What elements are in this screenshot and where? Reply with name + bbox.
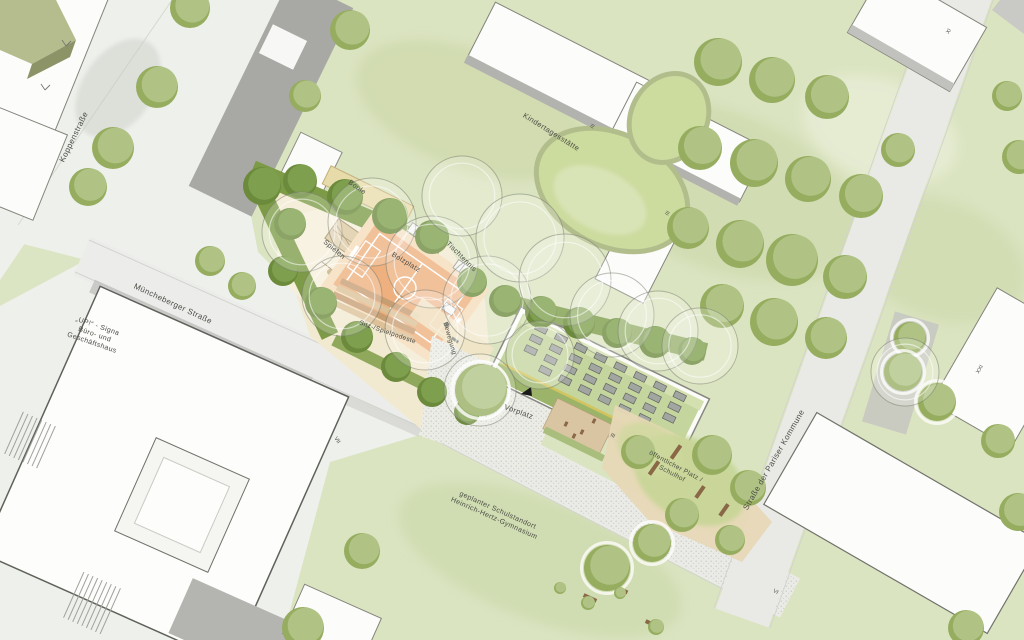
tree-icon [766, 234, 818, 286]
tree-crown-light [811, 318, 847, 354]
tree-icon [678, 126, 722, 170]
tree-icon [554, 582, 566, 594]
tree-outline [506, 321, 574, 389]
tree-outline-icon [662, 308, 738, 384]
tree-outline [662, 308, 738, 384]
tree-icon [716, 220, 764, 268]
tree-icon [631, 522, 674, 565]
tree-crown-light [719, 525, 745, 551]
tree-crown-light [986, 425, 1015, 454]
tree-crown-light [293, 80, 320, 107]
tree-icon [805, 317, 847, 359]
site-plan-canvas: KoppenstraßeMüncheberger StraßeKindertag… [0, 0, 1024, 640]
tree-crown-light [791, 157, 830, 196]
tree-icon [992, 81, 1022, 111]
tree-icon [881, 133, 915, 167]
tree-crown-light [886, 134, 915, 163]
tree-outline-icon [506, 321, 574, 389]
tree-icon [195, 246, 225, 276]
tree-icon [805, 75, 849, 119]
tree-icon [694, 38, 742, 86]
tree-icon [665, 498, 699, 532]
tree-crown-light [736, 140, 777, 181]
tree-crown-light [142, 67, 178, 103]
tree-crown-light [829, 256, 866, 293]
tree-icon [92, 127, 134, 169]
tree-icon [750, 298, 798, 346]
tree-crown-light [616, 587, 626, 597]
tree-crown-light [700, 39, 741, 80]
tree-icon [289, 80, 321, 112]
tree-crown-light [638, 525, 670, 557]
tree-crown-light [996, 81, 1022, 107]
tree-icon [69, 168, 107, 206]
tree-crown-light [349, 534, 380, 565]
tree-outline [444, 354, 516, 426]
tree-outline-icon [444, 354, 516, 426]
tree-crown-light [755, 58, 794, 97]
tree-crown-light [590, 546, 629, 585]
tree-dark-icon [417, 377, 447, 407]
tree-crown-light [199, 246, 225, 272]
tree-icon [785, 156, 831, 202]
tree-crown-light [74, 169, 106, 201]
tree-icon [170, 0, 210, 28]
storeys-vii-up-numeral: VII [332, 436, 341, 445]
tree-icon [715, 525, 745, 555]
tree-icon [823, 255, 867, 299]
tree-icon [344, 533, 380, 569]
tree-icon [582, 543, 633, 594]
tree-icon [692, 435, 732, 475]
tree-icon [730, 139, 778, 187]
up-stairs [5, 412, 24, 454]
tree-crown-light [684, 127, 721, 164]
up-stairs [9, 414, 28, 456]
tree-dark-icon [243, 167, 281, 205]
tree-outline [871, 338, 939, 406]
tree-icon [581, 596, 595, 610]
tree-icon [228, 272, 256, 300]
tree-icon [839, 174, 883, 218]
tree-crown-light [232, 272, 256, 296]
tree-outline-icon [871, 338, 939, 406]
tree-crown-light [773, 235, 817, 279]
tree-crown-light [673, 208, 709, 244]
tree-crown-light [953, 611, 984, 640]
tree-icon [667, 207, 709, 249]
tree-icon [648, 619, 664, 635]
tree-icon [614, 587, 626, 599]
tree-crown-light [670, 499, 699, 528]
tree-crown-light [421, 377, 447, 403]
tree-crown-light [248, 168, 280, 200]
tree-crown-light [722, 221, 763, 262]
tree-icon [330, 10, 370, 50]
tree-crown-light [335, 11, 369, 45]
tree-crown-light [811, 76, 848, 113]
tree-icon [136, 66, 178, 108]
tree-crown-light [697, 436, 731, 470]
site-plan: KoppenstraßeMüncheberger StraßeKindertag… [0, 0, 1024, 640]
tree-icon [749, 57, 795, 103]
tree-icon [981, 424, 1015, 458]
tree-crown-light [583, 596, 595, 608]
tree-crown-light [756, 299, 797, 340]
tree-crown-light [288, 165, 317, 194]
tree-crown-light [98, 128, 134, 164]
tree-crown-light [845, 175, 882, 212]
tree-crown-light [650, 619, 664, 633]
tree-crown-light [556, 582, 566, 592]
